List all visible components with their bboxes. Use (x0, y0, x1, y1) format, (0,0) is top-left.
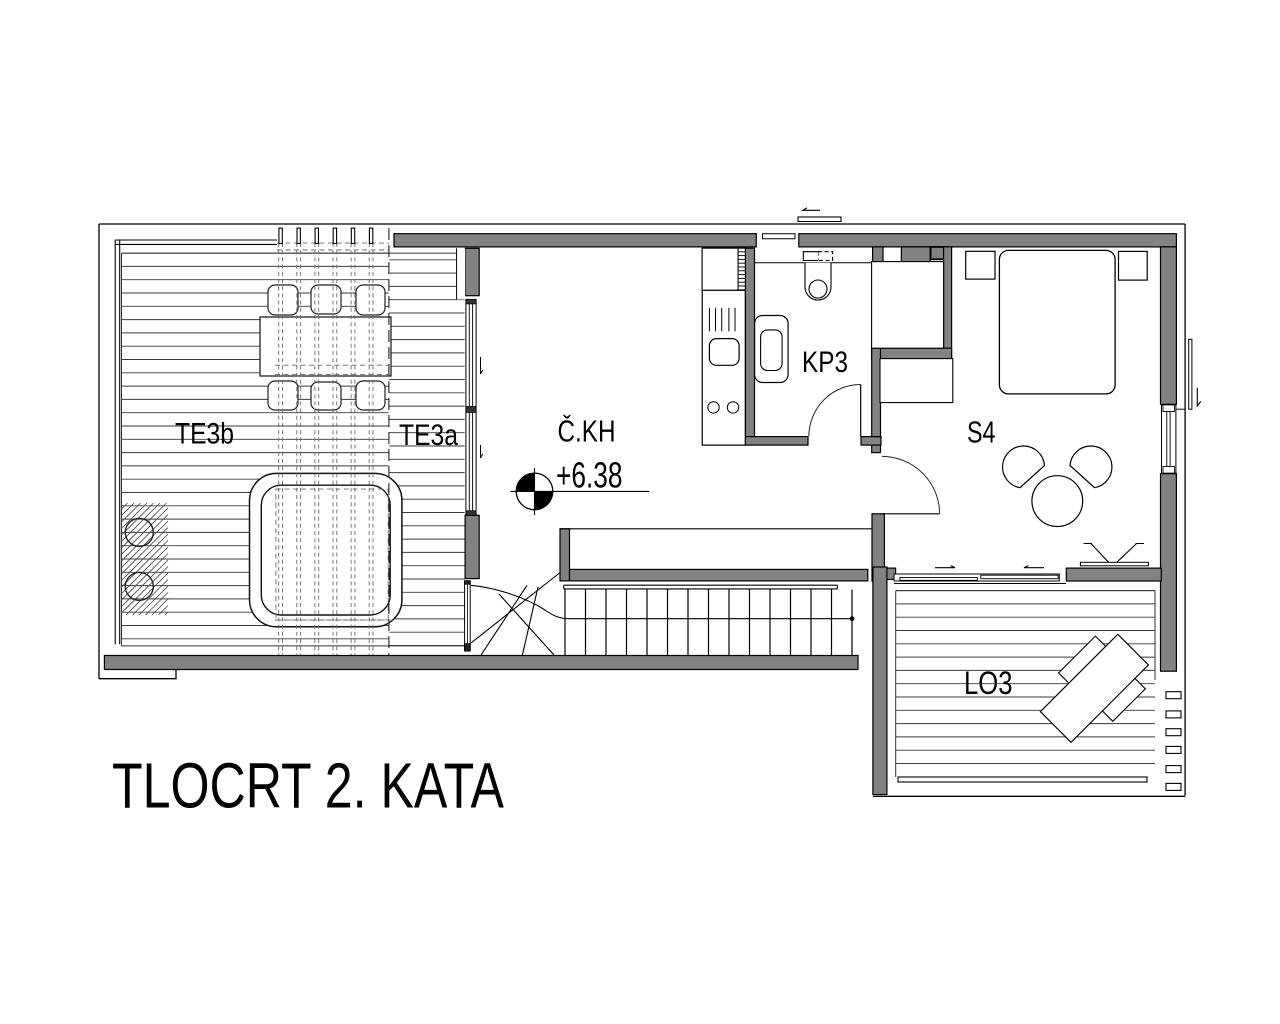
svg-text:S4: S4 (967, 414, 996, 449)
svg-text:+6.38: +6.38 (556, 455, 623, 496)
svg-text:TE3b: TE3b (175, 418, 234, 451)
svg-text:Č.KH: Č.KH (558, 414, 616, 449)
svg-text:LO3: LO3 (964, 665, 1013, 701)
svg-text:TE3a: TE3a (399, 419, 458, 452)
svg-text:KP3: KP3 (802, 346, 848, 379)
svg-text:TLOCRT 2. KATA: TLOCRT 2. KATA (112, 750, 504, 822)
